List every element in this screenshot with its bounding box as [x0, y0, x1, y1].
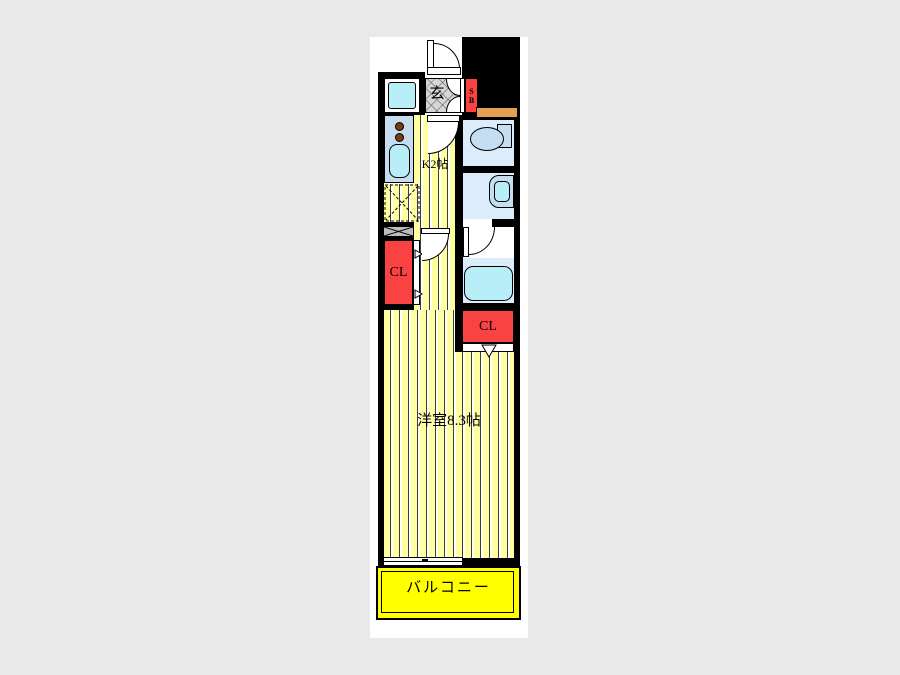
dashed-cross-icon	[384, 184, 420, 222]
entrance-door-swing-arc	[434, 43, 460, 69]
pipe-space	[383, 226, 414, 237]
page-background: 玄 S B K2帖	[0, 0, 900, 675]
entrance-door-leaf	[427, 40, 434, 69]
bathtub	[464, 266, 513, 301]
stove-burner-icon	[395, 133, 404, 142]
window-center-latch	[422, 559, 428, 561]
folding-door-triangle-icon	[481, 344, 497, 358]
closet-left-folding-door	[413, 240, 420, 305]
cross-icon	[384, 227, 413, 236]
wall-toilet-washroom	[463, 166, 514, 173]
shoe-box-door-arc-top	[446, 79, 460, 96]
closet-right-label: CL	[479, 319, 497, 335]
kitchen-door-leaf	[427, 115, 460, 122]
wall-washroom-bath	[492, 219, 514, 227]
floorplan-sheet: 玄 S B K2帖	[370, 37, 528, 638]
entrance-label: 玄	[427, 87, 447, 103]
closet-right-folding-door	[462, 343, 514, 352]
wash-basin	[494, 181, 510, 202]
folding-door-triangle-icon	[414, 289, 423, 299]
stove-burner-icon	[395, 122, 404, 131]
washroom	[463, 173, 514, 219]
washer-pan	[384, 78, 420, 113]
sliding-window	[383, 557, 463, 566]
window-rail-line	[384, 561, 462, 562]
toilet-bowl	[470, 127, 504, 151]
shoe-box-label-s: S	[469, 87, 473, 96]
closet-left: CL	[384, 240, 413, 305]
wall-closet-right-side	[455, 310, 462, 352]
wall-right	[514, 107, 520, 566]
wall-hall-divider	[455, 115, 463, 310]
entrance-threshold	[427, 67, 461, 75]
closet-right: CL	[462, 310, 514, 343]
kitchen-label: K2帖	[416, 158, 454, 171]
refrigerator-space	[384, 184, 420, 222]
toilet-room	[463, 120, 514, 166]
main-room-label: 洋室8.3帖	[384, 414, 514, 430]
balcony-label: バルコニー	[378, 581, 519, 597]
washing-machine	[388, 82, 416, 109]
entrance-hall: 玄	[425, 78, 460, 113]
vanity-unit	[489, 175, 514, 208]
kitchen-counter	[384, 115, 414, 183]
shoe-box-door-arc-bottom	[446, 96, 460, 112]
shoe-box-label-b: B	[469, 96, 474, 105]
wall-bottom	[462, 558, 491, 566]
wall-bath-closet	[455, 303, 514, 310]
closet-left-label: CL	[390, 265, 408, 281]
kitchen-sink	[389, 144, 410, 178]
balcony: バルコニー	[376, 566, 521, 620]
toilet-shelf	[476, 107, 518, 118]
